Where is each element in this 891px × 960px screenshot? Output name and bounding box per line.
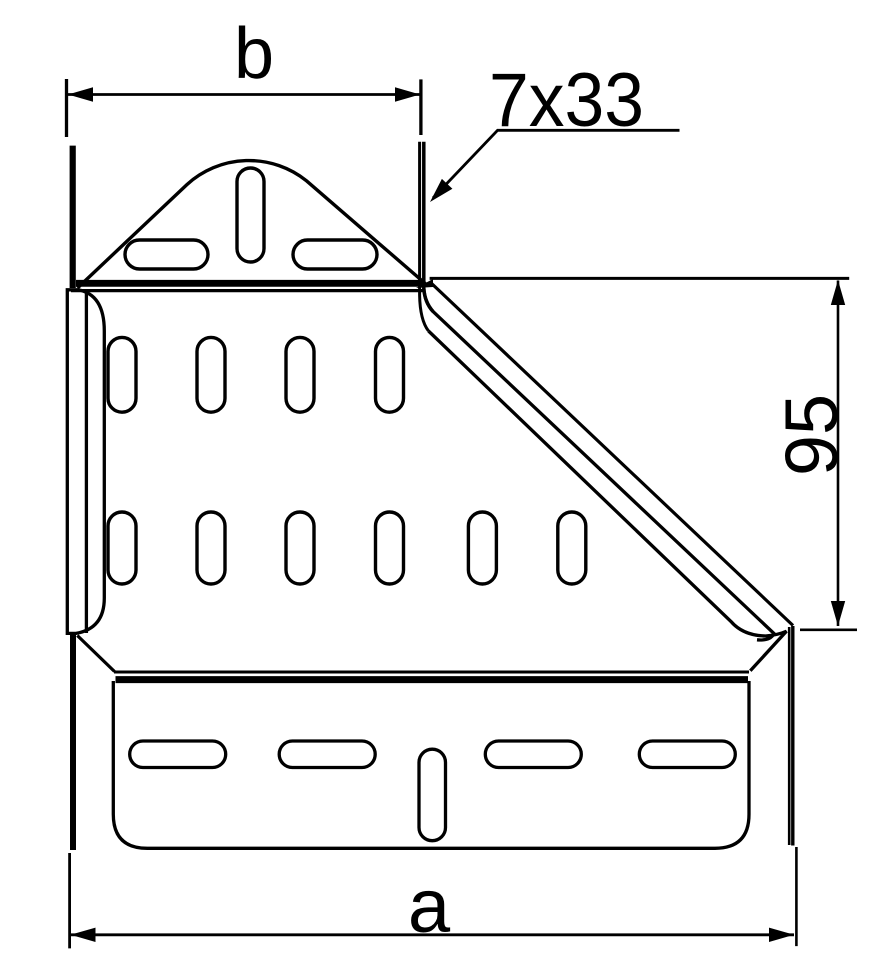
svg-text:b: b [234,14,274,94]
svg-text:a: a [408,864,451,949]
svg-text:95: 95 [770,394,853,476]
